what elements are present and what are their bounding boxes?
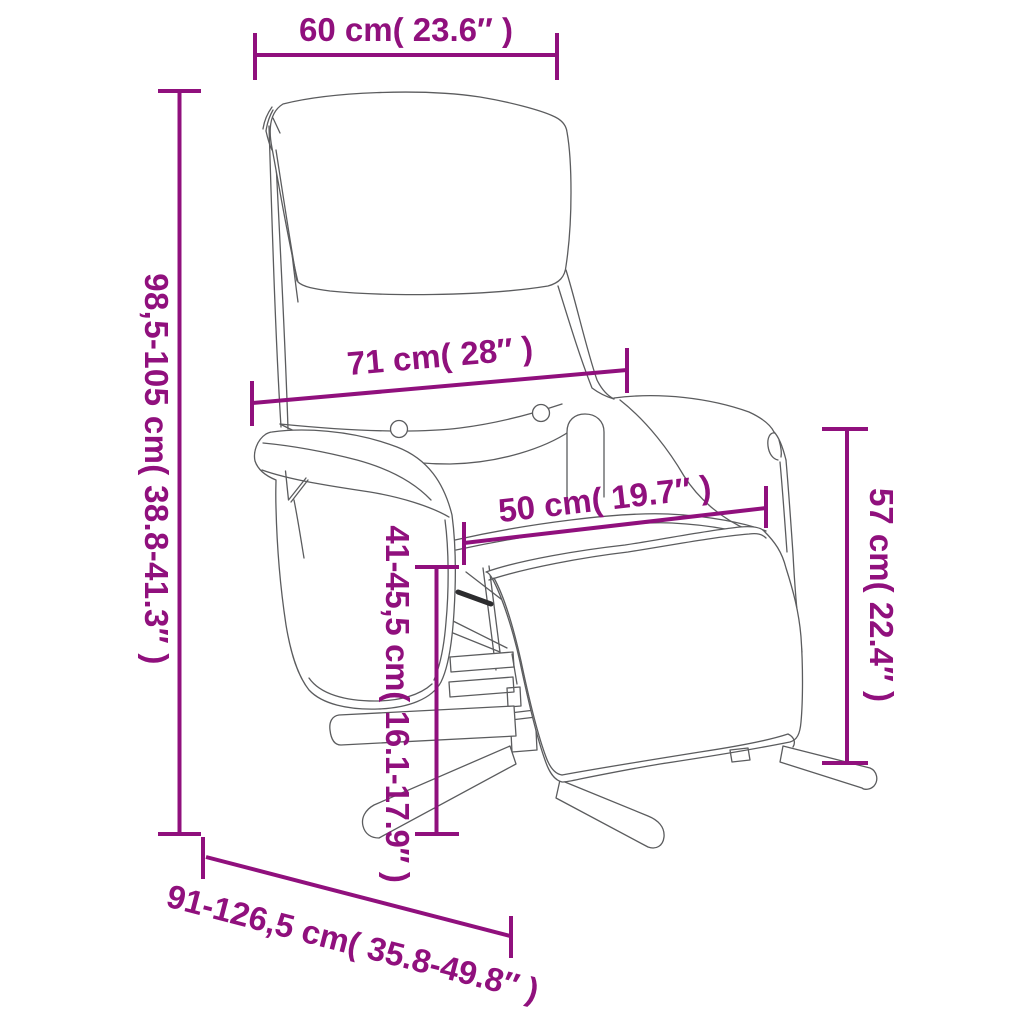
svg-text:60 cm( 23.6″ ): 60 cm( 23.6″ )	[299, 11, 513, 48]
svg-text:98,5-105 cm( 38.8-41.3″ ): 98,5-105 cm( 38.8-41.3″ )	[138, 273, 175, 664]
svg-text:41-45,5 cm( 16.1-17.9″ ): 41-45,5 cm( 16.1-17.9″ )	[379, 525, 416, 882]
svg-text:57 cm( 22.4″ ): 57 cm( 22.4″ )	[863, 488, 900, 702]
